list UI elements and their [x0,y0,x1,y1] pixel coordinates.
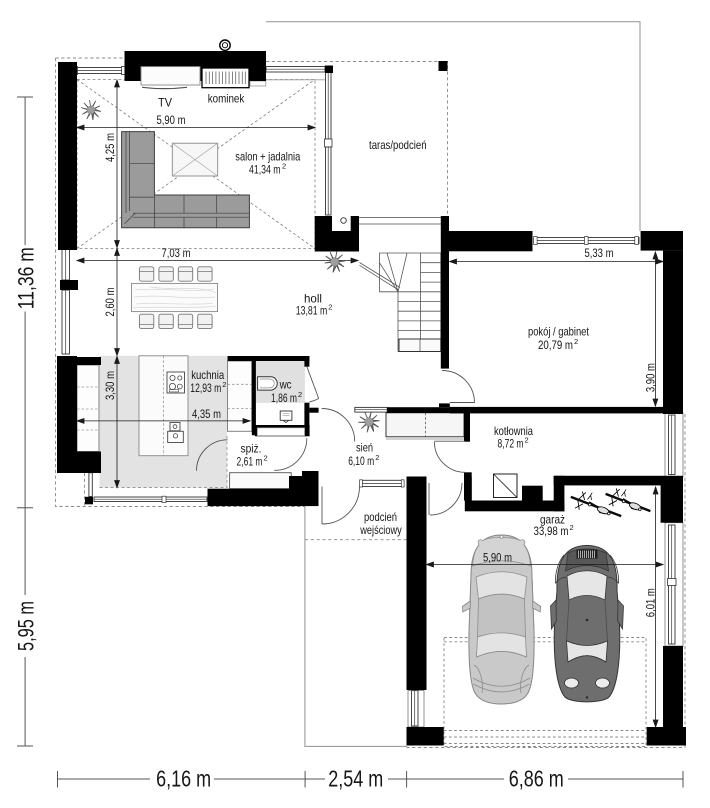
svg-text:33,98 m: 33,98 m [534,524,569,538]
svg-text:3,90 m: 3,90 m [644,363,658,392]
svg-text:TV: TV [158,96,172,110]
svg-text:4,35 m: 4,35 m [192,407,221,421]
svg-text:11,36 m: 11,36 m [13,247,38,309]
svg-text:pokój / gabinet: pokój / gabinet [528,325,590,339]
svg-text:kominek: kominek [208,92,245,106]
svg-text:sień: sień [356,440,373,454]
svg-text:7,03 m: 7,03 m [162,246,191,260]
svg-text:2: 2 [570,523,574,532]
svg-text:taras/podcień: taras/podcień [369,138,427,152]
svg-text:41,34 m: 41,34 m [249,163,281,177]
svg-text:5,90 m: 5,90 m [157,113,186,127]
svg-text:2: 2 [222,380,226,389]
svg-text:wejściowy: wejściowy [359,523,401,537]
svg-text:8,72 m: 8,72 m [498,437,524,451]
svg-text:2,54 m: 2,54 m [328,766,383,792]
svg-text:spiż.: spiż. [241,442,262,456]
svg-text:13,81 m: 13,81 m [296,304,328,318]
svg-text:5,90 m: 5,90 m [483,551,512,565]
svg-text:5,95 m: 5,95 m [13,601,38,651]
svg-text:2: 2 [525,436,529,445]
svg-text:6,10 m: 6,10 m [348,454,374,468]
svg-text:2: 2 [375,453,379,462]
svg-text:6,16 m: 6,16 m [156,766,211,792]
svg-text:6,86 m: 6,86 m [509,766,564,792]
svg-text:1,86 m: 1,86 m [271,391,297,405]
svg-text:3,30 m: 3,30 m [103,371,117,400]
svg-text:podcień: podcień [364,510,397,524]
svg-text:20,79 m: 20,79 m [538,338,573,352]
svg-text:4,25 m: 4,25 m [103,133,117,162]
svg-text:2,60 m: 2,60 m [103,287,117,316]
svg-text:5,33 m: 5,33 m [585,246,614,260]
svg-text:wc: wc [279,378,292,392]
svg-text:2: 2 [328,303,332,312]
svg-text:6,01 m: 6,01 m [644,588,658,617]
svg-text:12,93 m: 12,93 m [190,381,221,395]
svg-text:2: 2 [264,454,268,463]
svg-text:2: 2 [282,162,286,171]
svg-text:salon + jadalnia: salon + jadalnia [235,149,300,163]
svg-text:2: 2 [574,337,578,346]
svg-text:2,61 m: 2,61 m [237,455,263,469]
svg-text:2: 2 [298,390,302,399]
